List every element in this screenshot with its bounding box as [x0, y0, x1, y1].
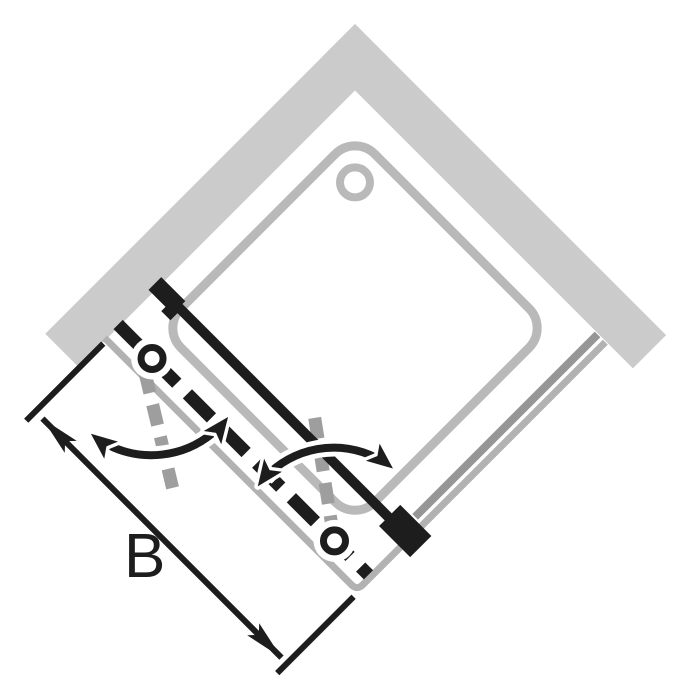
- dimension-label: B: [124, 526, 184, 588]
- drain-circle: [334, 161, 376, 203]
- dimension-tick-left: [26, 344, 103, 421]
- wall-top-band: [322, 24, 666, 368]
- dimension-tick-right: [277, 597, 353, 673]
- fixed-panel-line: [415, 334, 597, 516]
- shower-enclosure-diagram: [0, 0, 700, 700]
- diagram-stage: B: [0, 0, 700, 700]
- wall-left-band: [45, 24, 388, 367]
